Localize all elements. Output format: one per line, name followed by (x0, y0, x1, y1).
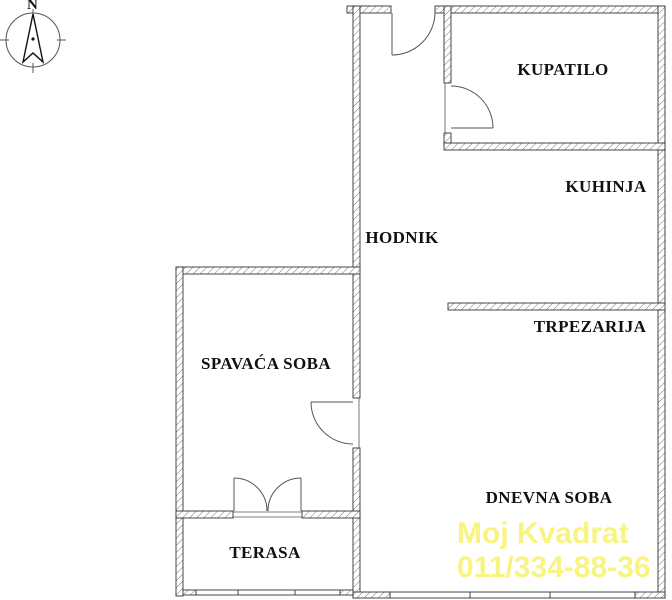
compass-center-dot (31, 37, 34, 40)
wall-bedroom-bottom-right (302, 511, 360, 518)
room-label-kupatilo: KUPATILO (517, 60, 608, 80)
room-label-dnevna-soba: DNEVNA SOBA (486, 488, 613, 508)
wall-hall-left-lower (353, 448, 360, 598)
wall-bottom-right (635, 592, 665, 598)
room-label-kuhinja: KUHINJA (565, 177, 646, 197)
entrance-door (392, 12, 435, 55)
watermark-brand: Moj Kvadrat (457, 517, 629, 551)
wall-trpezarija (448, 303, 665, 310)
wall-bedroom-bottom-left (176, 511, 233, 518)
wall-top-right (435, 6, 665, 13)
door-swing-arc (311, 402, 353, 444)
room-label-terasa: TERASA (229, 543, 300, 563)
floor-plan-drawing (0, 0, 672, 600)
terrace-double-door (233, 478, 302, 517)
floor-plan: N KUPATILO KUHINJA HODNIK TRPEZARIJA SPA… (0, 0, 672, 600)
room-label-spavaca-soba: SPAVAĆA SOBA (201, 354, 331, 374)
north-compass-icon (0, 9, 66, 73)
door-swing-arc (234, 478, 267, 511)
wall-right (658, 6, 665, 598)
compass-north-label: N (27, 0, 38, 14)
door-swing-arc (268, 478, 301, 511)
living-room-window (390, 592, 635, 598)
door-swing-arc (451, 86, 493, 128)
terrace-railing-stub-left (183, 590, 196, 595)
room-label-hodnik: HODNIK (365, 228, 438, 248)
wall-bathroom-left-upper (444, 6, 451, 83)
terrace-railing-stub-right (340, 590, 353, 595)
wall-hall-left-upper (353, 6, 360, 398)
bedroom-door (311, 398, 359, 448)
wall-bottom-left (353, 592, 390, 598)
room-label-trpezarija: TRPEZARIJA (534, 317, 647, 337)
watermark-phone: 011/334-88-36 (457, 551, 651, 585)
wall-bedroom-left (176, 267, 183, 596)
bathroom-door (445, 83, 493, 133)
terrace-railing (196, 590, 340, 595)
wall-bedroom-top (176, 267, 360, 274)
wall-bathroom-bottom (444, 143, 665, 150)
door-swing-arc (392, 12, 435, 55)
walls (176, 6, 665, 598)
